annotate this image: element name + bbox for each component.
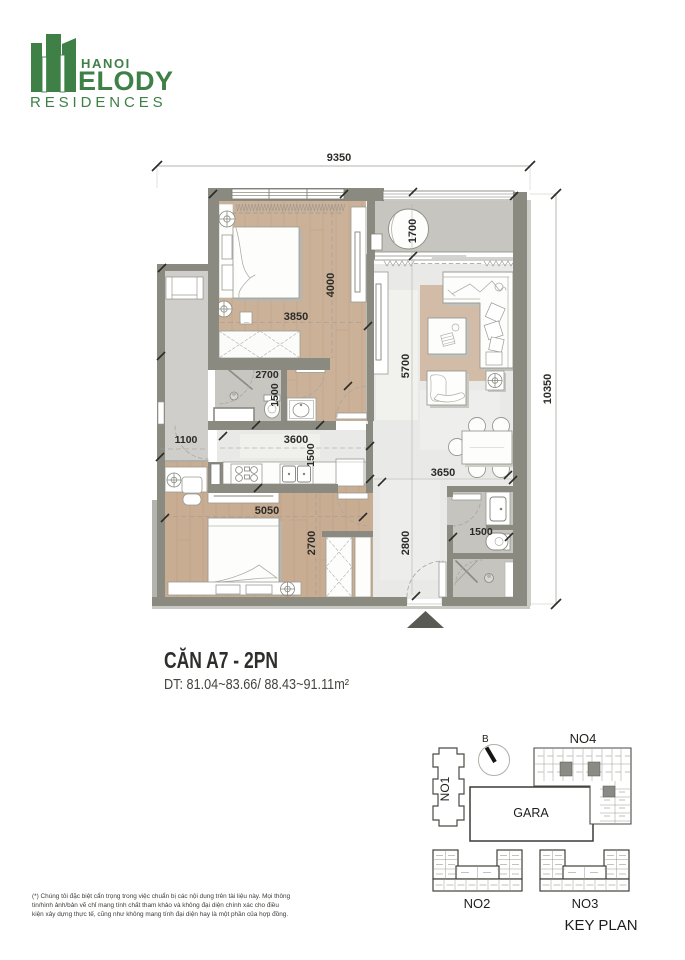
svg-text:tin/hình ảnh/bản vẽ chỉ mang t: tin/hình ảnh/bản vẽ chỉ mang tính chất t… — [32, 900, 279, 909]
svg-text:5050: 5050 — [255, 505, 279, 517]
svg-text:NO4: NO4 — [570, 731, 597, 746]
svg-text:5700: 5700 — [400, 354, 412, 378]
svg-text:NO3: NO3 — [572, 896, 599, 911]
svg-text:NO1: NO1 — [438, 776, 452, 801]
svg-text:2800: 2800 — [400, 531, 412, 555]
svg-text:4000: 4000 — [325, 273, 337, 297]
svg-text:3850: 3850 — [284, 311, 308, 323]
svg-text:1500: 1500 — [469, 526, 493, 538]
svg-text:2700: 2700 — [255, 369, 279, 381]
svg-text:NO2: NO2 — [464, 896, 491, 911]
svg-text:ELODY: ELODY — [78, 66, 174, 96]
svg-text:RESIDENCES: RESIDENCES — [30, 94, 167, 111]
svg-text:kiện xây dựng thực tế, cũng nh: kiện xây dựng thực tế, cũng như không ma… — [32, 909, 288, 918]
svg-text:1700: 1700 — [407, 219, 419, 243]
svg-text:3650: 3650 — [431, 467, 455, 479]
svg-text:9350: 9350 — [327, 152, 351, 164]
svg-text:CĂN A7 - 2PN: CĂN A7 - 2PN — [164, 646, 278, 673]
svg-text:1500: 1500 — [305, 443, 317, 467]
svg-text:KEY PLAN: KEY PLAN — [564, 917, 637, 934]
svg-text:10350: 10350 — [542, 374, 554, 405]
svg-text:1100: 1100 — [175, 434, 198, 446]
svg-text:B: B — [482, 734, 489, 745]
svg-text:GARA: GARA — [513, 806, 549, 820]
svg-text:1500: 1500 — [269, 383, 281, 407]
svg-text:2700: 2700 — [306, 531, 318, 555]
svg-text:DT: 81.04~83.66/ 88.43~91.11m²: DT: 81.04~83.66/ 88.43~91.11m² — [164, 677, 349, 693]
svg-text:(*) Chúng tôi đặc biệt cẩn trọ: (*) Chúng tôi đặc biệt cẩn trọng trong v… — [32, 892, 291, 900]
